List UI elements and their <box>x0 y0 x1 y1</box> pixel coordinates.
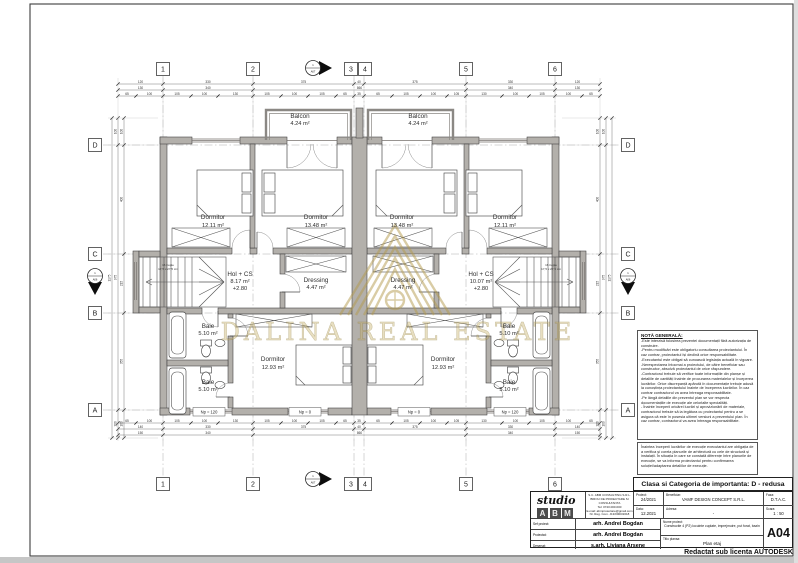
room-area: 4.24 m² <box>408 121 427 127</box>
grid-bubble-label: D <box>92 143 97 150</box>
bed <box>197 170 352 385</box>
dimension-value: 150 <box>138 431 144 435</box>
note-item: -Nerespectarea întocmai a proiectului, d… <box>641 363 754 372</box>
pre-execution-note-box: Înaintea începerii lucrărilor de execuți… <box>637 442 758 475</box>
dimension-value: 105 <box>539 92 545 96</box>
dimension-value: 100 <box>513 92 519 96</box>
phase-value: D.T.A.C. <box>764 497 793 502</box>
dimension-value: 105 <box>319 92 325 96</box>
dimension-value: 35 <box>357 92 361 96</box>
room-name: Dormitor <box>493 214 517 221</box>
project-number-value: 24/2021 <box>634 497 663 502</box>
grid-bubble-label: D <box>625 143 630 150</box>
staff-role-label: Sef proiect: <box>531 519 576 529</box>
dimension-value: 130 <box>481 419 487 423</box>
note-item: - Înainte începerii oricărei lucrări și … <box>641 405 754 424</box>
dimension-value: 105 <box>403 92 409 96</box>
abm-letter: A <box>537 508 548 519</box>
dimension-value: 65 <box>589 92 593 96</box>
dimension-value: 975 <box>602 275 606 281</box>
room-area: 12.93 m² <box>432 365 455 371</box>
sill-label: Np = 120 <box>502 410 519 415</box>
dimension-value: 65 <box>343 92 347 96</box>
dimension-value: 100 <box>596 421 600 427</box>
dimension-value: 130 <box>481 92 487 96</box>
title-block: studio ABM S.C. ABM CONSULTING S.R.L.BIR… <box>530 491 793 548</box>
dimension-value: 340 <box>508 86 514 90</box>
client-value: VAMF DESIGN CONCEPT S.R.L. <box>664 497 763 502</box>
grid-bubble-label: 3 <box>349 67 353 74</box>
dimension-value: 105 <box>403 419 409 423</box>
project-name-value: Constructie 4 (P2) locuinte cuplate, imp… <box>661 524 763 528</box>
dimension-value: 375 <box>412 80 418 84</box>
room-area: 4.24 m² <box>290 121 309 127</box>
grid-bubble-label: 3 <box>349 482 353 489</box>
dimension-value: 400 <box>120 197 124 203</box>
dimension-value: 340 <box>205 431 211 435</box>
staff-name: arh. Andrei Bogdan <box>576 532 660 538</box>
dimension-value: 100 <box>202 419 208 423</box>
drawing-sheet: 1203303754037533012013034086034013065100… <box>0 0 798 563</box>
dimension-value: 400 <box>596 197 600 203</box>
sheet-number: A04 <box>764 519 793 548</box>
stair-note: 17,5 x 27,5 cm <box>541 267 561 271</box>
room-name: Balcon <box>290 113 310 120</box>
dimension-value: 340 <box>205 86 211 90</box>
room-area: 12.11 m² <box>494 223 516 229</box>
dimension-value: 100 <box>292 419 298 423</box>
dimension-value: 100 <box>120 129 124 135</box>
date-cell: Data: 12.2021 <box>634 506 664 520</box>
svg-text:A07: A07 <box>311 481 316 485</box>
autodesk-license-note: Redactat sub licenta AUTODESK <box>560 549 793 557</box>
scale-cell: Scara: 1 : 50 <box>764 506 793 520</box>
dimension-value: 1175 <box>108 274 112 281</box>
room-name: Dormitor <box>390 214 414 221</box>
phase-cell: Faza: D.T.A.C. <box>764 492 793 506</box>
dimension-value: 100 <box>292 92 298 96</box>
dimension-value: 330 <box>205 80 211 84</box>
dimension-value: 35 <box>357 419 361 423</box>
balcony-divider <box>356 108 363 138</box>
dimension-value: 375 <box>412 425 418 429</box>
address-value: - <box>664 511 763 516</box>
dimension-value: 100 <box>431 92 437 96</box>
grid-bubble-label: A <box>626 408 631 415</box>
dimension-value: 150 <box>575 431 581 435</box>
grid-bubble-label: 4 <box>363 482 367 489</box>
dimension-value: 100 <box>566 92 572 96</box>
room-area: 12.11 m² <box>202 223 224 229</box>
staircase <box>139 257 226 307</box>
grid-bubble-label: 1 <box>161 67 165 74</box>
note-item: -Contractorul trebuie să verifice toate … <box>641 372 754 396</box>
dimension-value: 105 <box>454 419 460 423</box>
dimension-value: 130 <box>575 86 581 90</box>
grid-bubble-label: 5 <box>464 482 468 489</box>
room-name: Dressing <box>304 277 329 284</box>
dimension-value: 355 <box>596 359 600 365</box>
watermark-text: DALINA REAL ESTATE <box>221 318 576 346</box>
dimension-value: 105 <box>264 92 270 96</box>
svg-text:A07: A07 <box>311 70 316 74</box>
abm-letter: M <box>562 508 573 519</box>
company-info-line: Nr. Reg. Com. J13/0000/2018 <box>586 513 633 517</box>
grid-bubble-label: 6 <box>553 67 557 74</box>
dimension-value: 65 <box>125 92 129 96</box>
dimension-value: 40 <box>357 425 361 429</box>
room-area: 4.47 m² <box>393 285 412 291</box>
room-name: Dormitor <box>304 214 328 221</box>
room-area: 5.10 m² <box>198 387 217 393</box>
dimension-value: 100 <box>120 421 124 427</box>
dimension-value: 330 <box>205 425 211 429</box>
room-name: Baie <box>503 379 516 386</box>
room-name: Hol + CS <box>227 271 252 278</box>
dimension-value: 100 <box>566 419 572 423</box>
dimension-value: 975 <box>114 275 118 281</box>
grid-bubble-label: 2 <box>251 482 255 489</box>
section-marker-bottom: 1 A07 <box>306 472 333 487</box>
room-name: Baie <box>503 323 516 330</box>
company-info: S.C. ABM CONSULTING S.R.L.BIROU DE PROIE… <box>586 492 634 519</box>
dimension-value: 100 <box>596 129 600 135</box>
dimension-value: 100 <box>431 419 437 423</box>
sheet-number-cell: A04 <box>764 519 793 549</box>
dimension-value: 130 <box>233 92 239 96</box>
dimension-value: 215 <box>120 281 124 287</box>
dimension-value: 100 <box>147 92 153 96</box>
room-name: Balcon <box>408 113 428 120</box>
sill-label: Np = 0 <box>408 410 421 415</box>
room-area: 8.17 m² <box>230 279 249 285</box>
pre-execution-note: Înaintea începerii lucrărilor de execuți… <box>641 445 754 469</box>
dimension-value: 100 <box>602 129 606 135</box>
room-name: Baie <box>202 323 215 330</box>
abm-letter-squares: ABM <box>531 507 585 519</box>
room-level: +2.80 <box>233 286 247 292</box>
grid-bubble-label: 2 <box>251 67 255 74</box>
note-item: -Executantul este obligat să cunoască le… <box>641 358 754 363</box>
room-area: 5.10 m² <box>499 331 518 337</box>
stair-note: 17,5 x 27,5 cm <box>158 267 178 271</box>
page-edge-bottom <box>0 557 798 563</box>
room-area: 13.48 m² <box>391 223 414 229</box>
dimension-value: 40 <box>357 80 361 84</box>
date-value: 12.2021 <box>634 511 663 516</box>
room-area: 13.48 m² <box>305 223 328 229</box>
section-marker-right: 1 A06 <box>621 269 636 296</box>
dimension-value: 105 <box>174 419 180 423</box>
address-cell: Adresa: - <box>664 506 764 520</box>
sill-label: Np = 120 <box>201 410 218 415</box>
room-area: 12.93 m² <box>262 365 285 371</box>
staff-row: Proiectat:arh. Andrei Bogdan <box>531 530 660 541</box>
grid-bubble-label: 4 <box>363 67 367 74</box>
grid-bubble-label: B <box>93 311 98 318</box>
room-name: Hol + CS <box>468 271 493 278</box>
dimension-value: 355 <box>120 359 124 365</box>
dimension-value: 330 <box>508 80 514 84</box>
notes-list: -Este interzisă folosirea prezentei docu… <box>641 339 754 424</box>
grid-bubble-label: B <box>626 311 631 318</box>
staff-name: arh. Andrei Bogdan <box>576 521 660 527</box>
dimension-value: 340 <box>508 431 514 435</box>
staff-role-label: Proiectat: <box>531 530 576 540</box>
dimension-value: 1175 <box>608 274 612 281</box>
section-marker-top: 1 A07 <box>306 61 333 76</box>
general-notes-box: NOTĂ GENERALĂ: -Este interzisă folosirea… <box>637 330 758 440</box>
project-number-cell: Proiect: 24/2021 <box>634 492 664 506</box>
dimension-value: 130 <box>138 86 144 90</box>
room-area: 10.07 m² <box>470 279 493 285</box>
client-cell: Beneficiar: VAMF DESIGN CONCEPT S.R.L. <box>664 492 764 506</box>
dimension-value: 105 <box>319 419 325 423</box>
dimension-value: 105 <box>264 419 270 423</box>
room-name: Dormitor <box>201 214 225 221</box>
dimension-value: 105 <box>174 92 180 96</box>
note-item: -Pe lângă detaliile din prezentul plan s… <box>641 396 754 405</box>
dimension-value: 140 <box>138 425 144 429</box>
sheet-title-cell: Titlu plansa: Plan etaj <box>661 536 764 549</box>
note-item: -Pentru modificări este obligatoriu cons… <box>641 348 754 357</box>
room-name: Dormitor <box>261 356 285 363</box>
dimension-value: 100 <box>147 419 153 423</box>
dimension-value: 105 <box>454 92 460 96</box>
dimension-value: 100 <box>602 421 606 427</box>
dimension-value: 860 <box>357 86 363 90</box>
svg-text:A06: A06 <box>626 278 631 282</box>
grid-bubble-label: 1 <box>161 482 165 489</box>
room-name: Dressing <box>391 277 416 284</box>
scale-value: 1 : 50 <box>764 511 793 516</box>
grid-bubble-label: C <box>92 252 97 259</box>
room-area: 5.10 m² <box>499 387 518 393</box>
dimension-value: 100 <box>513 419 519 423</box>
studio-logo: studio ABM <box>531 492 586 519</box>
staff-row: Sef proiect:arh. Andrei Bogdan <box>531 519 660 530</box>
svg-text:A06: A06 <box>93 278 98 282</box>
room-name: Dormitor <box>431 356 455 363</box>
dimension-value: 140 <box>575 425 581 429</box>
abm-letter: B <box>550 508 561 519</box>
dimension-value: 65 <box>376 92 380 96</box>
dimension-value: 215 <box>596 281 600 287</box>
dimension-value: 100 <box>114 129 118 135</box>
dimension-value: 375 <box>301 425 307 429</box>
dimension-value: 860 <box>357 431 363 435</box>
page-edge-right <box>794 0 798 563</box>
section-marker-left: 1 A06 <box>88 269 103 296</box>
room-level: +2.80 <box>474 286 488 292</box>
grid-bubble-label: 5 <box>464 67 468 74</box>
sill-label: Np = 0 <box>299 410 312 415</box>
dimension-value: 100 <box>114 421 118 427</box>
dimension-value: 65 <box>125 419 129 423</box>
dimension-value: 375 <box>301 80 307 84</box>
dimension-value: 120 <box>575 80 581 84</box>
room-name: Baie <box>202 379 215 386</box>
dimension-value: 65 <box>376 419 380 423</box>
dimension-value: 130 <box>233 419 239 423</box>
grid-bubble-label: C <box>625 252 630 259</box>
studio-logo-text: studio <box>531 492 585 507</box>
room-area: 5.10 m² <box>198 331 217 337</box>
dimension-value: 330 <box>508 425 514 429</box>
dimension-value: 120 <box>138 80 144 84</box>
sheet-title-value: Plan etaj <box>661 541 763 546</box>
grid-bubble-label: 6 <box>553 482 557 489</box>
staff-table: Sef proiect:arh. Andrei BogdanProiectat:… <box>531 519 661 549</box>
dimension-value: 100 <box>202 92 208 96</box>
project-name-cell: Nume proiect: Constructie 4 (P2) locuint… <box>661 519 764 536</box>
grid-bubble-label: A <box>93 408 98 415</box>
importance-class-bar: Clasa si Categoria de importanta: D - re… <box>633 477 793 491</box>
dimension-value: 105 <box>539 419 545 423</box>
dimension-value: 65 <box>343 419 347 423</box>
dimension-value: 65 <box>589 419 593 423</box>
room-area: 4.47 m² <box>306 285 325 291</box>
